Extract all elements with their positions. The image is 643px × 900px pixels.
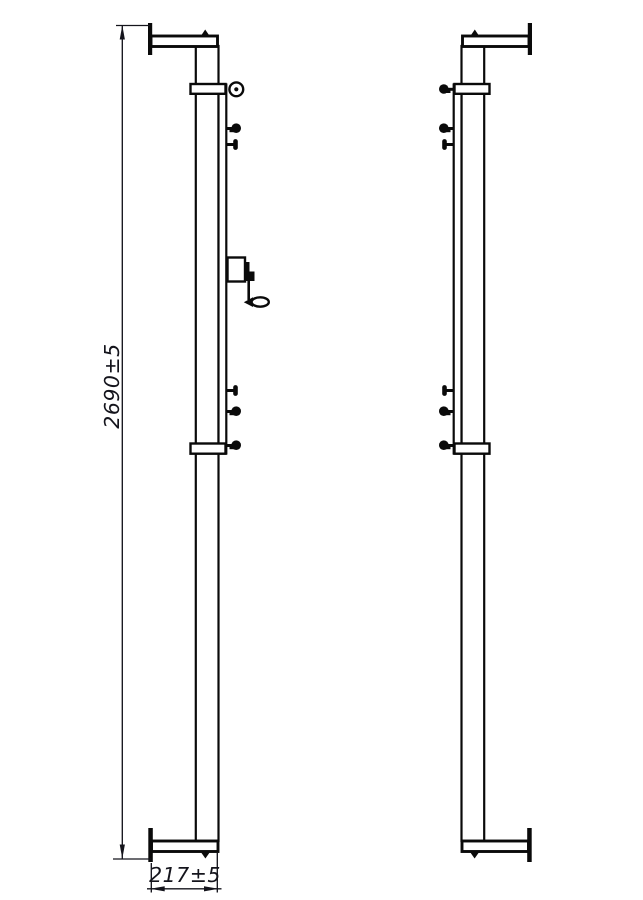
- crank-handle: [252, 297, 269, 306]
- post-body: [148, 23, 226, 862]
- technical-drawing: 2690±5 217±5: [0, 0, 643, 900]
- net-hook-tpin: [442, 385, 454, 396]
- post-body: [454, 23, 532, 862]
- net-hook-tpin: [442, 139, 454, 150]
- net-hook-bead: [439, 406, 454, 416]
- winch-crank: [228, 258, 269, 308]
- arrowhead-down: [120, 845, 125, 859]
- net-hook-tpin: [226, 385, 238, 396]
- net-hook-bead: [226, 123, 241, 133]
- cable-pulley: [229, 82, 243, 96]
- arrowhead-up: [120, 25, 125, 39]
- net-hook-bead: [439, 123, 454, 133]
- post-view-left: [148, 23, 269, 862]
- winch-hub: [244, 262, 255, 281]
- net-hook-bead: [226, 440, 241, 450]
- net-hook-bead: [226, 406, 241, 416]
- height-dimension-label: 2690±5: [100, 343, 124, 428]
- height-dimension: 2690±5: [100, 25, 151, 859]
- width-dimension-label: 217±5: [149, 863, 221, 887]
- net-hook-bead: [439, 84, 454, 94]
- net-hook-tpin: [226, 139, 238, 150]
- drawing-canvas: 2690±5 217±5: [0, 0, 643, 900]
- width-dimension: 217±5: [147, 853, 222, 893]
- net-hook-bead: [439, 440, 454, 450]
- pulley-axle: [234, 87, 238, 91]
- post-view-right: [439, 23, 532, 862]
- winch-housing: [228, 258, 246, 282]
